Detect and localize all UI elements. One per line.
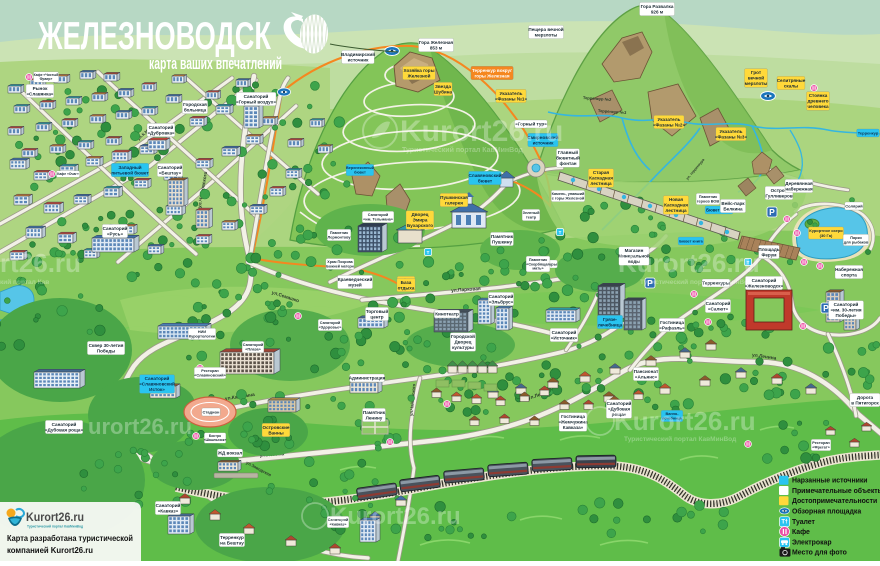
svg-text:Санаторий: Санаторий [145, 375, 170, 381]
svg-text:Указатель: Указатель [500, 91, 523, 96]
svg-text:Kurort26.ru: Kurort26.ru [26, 512, 84, 524]
svg-text:Туристический портал КавМинВод: Туристический портал КавМинВод [27, 524, 83, 529]
svg-text:Электрокар: Электрокар [792, 539, 832, 546]
svg-text:Эмира: Эмира [413, 218, 428, 223]
svg-text:«Дубровка»: «Дубровка» [147, 129, 175, 135]
svg-text:Грязе-: Грязе- [603, 317, 618, 322]
svg-text:«Жемчужина: «Жемчужина [558, 420, 588, 425]
svg-text:Гора Развалка: Гора Развалка [641, 4, 674, 9]
svg-text:Туалет: Туалет [792, 519, 816, 526]
svg-text:Исток»: Исток» [149, 387, 165, 392]
svg-text:Терренкур: Терренкур [220, 535, 244, 540]
svg-text:Каскадная: Каскадная [664, 203, 688, 208]
svg-text:Набережная: Набережная [835, 266, 863, 272]
svg-text:галерея: галерея [445, 200, 463, 205]
svg-text:Хозяйка горы: Хозяйка горы [403, 67, 434, 73]
svg-text:Санаторий: Санаторий [156, 502, 181, 508]
svg-text:Лермонтову: Лермонтову [328, 236, 352, 240]
svg-text:кий портал Кав: кий портал Кав [0, 278, 49, 286]
svg-text:Санаторий: Санаторий [158, 164, 183, 170]
svg-text:Гулливеров: Гулливеров [765, 193, 793, 198]
svg-text:Железной: Железной [407, 72, 431, 78]
svg-text:«Скорбящая: «Скорбящая [526, 262, 549, 266]
svg-text:rt26.ru: rt26.ru [0, 248, 81, 278]
svg-text:«Фазаны №2»: «Фазаны №2» [653, 122, 686, 127]
svg-text:Терренкур: Терренкур [858, 131, 879, 136]
svg-text:Бювет книга: Бювет книга [679, 240, 703, 244]
svg-text:Дворец: Дворец [411, 212, 428, 217]
svg-text:T: T [427, 250, 430, 255]
svg-text:Санаторий: Санаторий [320, 321, 341, 325]
svg-text:Стоянка: Стоянка [809, 93, 828, 98]
svg-text:Новая: Новая [669, 197, 683, 202]
svg-text:Пансионат: Пансионат [634, 369, 659, 374]
svg-text:«Славяновский: «Славяновский [139, 381, 175, 387]
svg-text:«Фазаны №3»: «Фазаны №3» [715, 134, 748, 139]
svg-text:Ферум: Ферум [761, 252, 777, 257]
svg-text:Каскадная: Каскадная [589, 176, 613, 181]
svg-text:«Здоровье»: «Здоровье» [319, 326, 342, 330]
svg-text:больница: больница [184, 106, 207, 112]
svg-text:бювет: бювет [478, 177, 493, 183]
svg-text:горы Железная: горы Железная [474, 73, 509, 78]
svg-text:Санаторий: Санаторий [149, 124, 174, 130]
svg-text:Место для фото: Место для фото [792, 550, 847, 557]
svg-text:Дворец: Дворец [454, 340, 471, 345]
svg-text:Карта разработана туристическо: Карта разработана туристической [7, 533, 133, 543]
svg-text:Дорога: Дорога [857, 395, 874, 400]
svg-text:«Рафаэль»: «Рафаэль» [659, 324, 685, 330]
svg-text:музей: музей [348, 281, 362, 287]
svg-text:Бухарского: Бухарского [407, 223, 433, 228]
svg-text:Нарзанные источники: Нарзанные источники [792, 478, 868, 485]
svg-text:Божией матери: Божией матери [326, 264, 353, 268]
svg-text:Ресторан: Ресторан [812, 441, 830, 445]
svg-text:Санаторий: Санаторий [103, 225, 128, 231]
svg-text:Рынок: Рынок [33, 86, 49, 91]
svg-text:бювет: бювет [354, 171, 366, 175]
svg-text:Примечательные объекты: Примечательные объекты [792, 487, 880, 495]
svg-text:Туристический портал КавМинВод: Туристический портал КавМинВод [624, 435, 736, 443]
svg-text:Kurort26.ru: Kurort26.ru [614, 406, 756, 436]
svg-text:центр: центр [370, 314, 383, 319]
svg-text:ЖД вокзал: ЖД вокзал [217, 451, 242, 456]
svg-text:Вейс-парк: Вейс-парк [721, 200, 745, 206]
svg-text:«Салют»: «Салют» [708, 306, 728, 311]
svg-text:Администрация: Администрация [349, 376, 386, 381]
svg-text:театр: театр [526, 216, 537, 220]
svg-text:Западный: Западный [118, 164, 141, 170]
svg-text:Терренкур вокруг: Терренкур вокруг [472, 68, 512, 73]
svg-text:Торговый: Торговый [366, 308, 389, 314]
svg-text:Kurort26.ru: Kurort26.ru [618, 248, 760, 278]
svg-text:в Пятигорск: в Пятигорск [851, 400, 879, 405]
svg-text:Зеленый: Зеленый [523, 211, 540, 215]
svg-text:P: P [823, 303, 829, 313]
svg-text:«Фрегат»: «Фрегат» [812, 446, 829, 450]
svg-text:Памятник: Памятник [363, 410, 386, 415]
svg-text:Гора Железная: Гора Железная [419, 40, 454, 45]
svg-text:Сквер 30-летия: Сквер 30-летия [89, 343, 124, 348]
svg-text:P: P [769, 207, 775, 217]
svg-text:Звезда: Звезда [435, 84, 451, 89]
svg-text:Владимирский: Владимирский [341, 51, 375, 57]
svg-text:Туристический портал КавМинВод: Туристический портал КавМинВод [402, 146, 523, 154]
svg-text:Санаторий: Санаторий [243, 343, 264, 347]
svg-text:Гостиница: Гостиница [561, 414, 585, 419]
svg-text:Пушкинская: Пушкинская [440, 195, 468, 200]
svg-text:культуры: культуры [452, 345, 474, 350]
svg-text:Грот: Грот [751, 70, 762, 75]
svg-text:источник: источник [348, 57, 370, 62]
svg-text:Санаторий: Санаторий [368, 213, 389, 217]
svg-text:Городской: Городской [451, 333, 475, 339]
svg-text:База: База [401, 280, 412, 285]
svg-text:Памятник: Памятник [491, 234, 514, 239]
svg-text:Пещера вечной: Пещера вечной [528, 26, 563, 32]
svg-text:Славяновский: Славяновский [468, 172, 501, 178]
svg-text:бюветный: бюветный [556, 155, 580, 161]
svg-text:с горы Железной: с горы Железной [552, 197, 585, 201]
svg-text:питьевой бювет: питьевой бювет [111, 169, 149, 175]
svg-text:Стадион: Стадион [203, 410, 221, 415]
svg-text:Памятник: Памятник [529, 258, 547, 262]
svg-text:Туристический портал КавМинВод: Туристический портал КавМинВод [640, 278, 752, 286]
svg-text:скалы: скалы [784, 83, 798, 88]
svg-text:Белкина: Белкина [723, 206, 743, 211]
svg-text:мерзлоты: мерзлоты [745, 81, 768, 86]
svg-text:Верхнеконный: Верхнеконный [346, 166, 375, 170]
svg-text:Деревянная: Деревянная [785, 181, 813, 186]
svg-text:Кафе: Кафе [792, 529, 810, 536]
svg-text:Курортологии: Курортологии [189, 335, 216, 339]
svg-text:для рыбаков: для рыбаков [844, 241, 869, 245]
svg-text:Победы: Победы [97, 347, 115, 353]
svg-text:Ванны: Ванны [268, 430, 283, 435]
svg-text:Островские: Островские [263, 425, 290, 430]
svg-text:«Славянка»: «Славянка» [27, 91, 54, 96]
svg-text:«Русь»: «Русь» [107, 231, 123, 236]
svg-text:Санаторий: Санаторий [552, 329, 577, 335]
svg-text:853 м: 853 м [430, 45, 443, 50]
svg-text:Солярий: Солярий [845, 204, 863, 209]
svg-text:Санаторий: Санаторий [52, 421, 77, 427]
svg-text:«Плаза»: «Плаза» [245, 348, 260, 352]
svg-text:«Источник»: «Источник» [551, 335, 578, 340]
svg-text:«Эльбрус»: «Эльбрус» [489, 298, 514, 304]
svg-text:Камень, упавший: Камень, упавший [552, 192, 585, 196]
svg-text:Санаторий: Санаторий [706, 300, 731, 306]
svg-text:компанией Kurort26.ru: компанией Kurort26.ru [7, 545, 93, 555]
svg-text:НИИ: НИИ [198, 330, 206, 334]
svg-text:Старая: Старая [593, 170, 609, 175]
svg-text:вечной: вечной [748, 75, 764, 81]
svg-text:«Шашлычок»: «Шашлычок» [204, 438, 227, 442]
svg-text:926 м: 926 м [651, 9, 664, 14]
svg-text:лестница: лестница [590, 181, 612, 186]
svg-text:Kurort26.ru: Kurort26.ru [400, 115, 563, 148]
svg-text:ЖЕЛЕЗНОВОДСК: ЖЕЛЕЗНОВОДСК [37, 15, 271, 58]
svg-text:Гостиница: Гостиница [660, 320, 684, 325]
svg-text:«Бештау»: «Бештау» [159, 170, 182, 175]
svg-text:Селитряные: Селитряные [777, 78, 806, 83]
svg-text:Победы»: Победы» [836, 312, 857, 318]
svg-text:Главный: Главный [558, 149, 578, 155]
svg-text:Кавказа»: Кавказа» [563, 425, 584, 430]
svg-text:фонтан: фонтан [559, 160, 576, 166]
svg-text:«Дубовая роща»: «Дубовая роща» [45, 426, 83, 432]
svg-text:Кинотеатр: Кинотеатр [435, 312, 459, 317]
svg-text:Фраер»: Фраер» [40, 77, 53, 81]
svg-text:мать»: мать» [532, 267, 543, 271]
svg-text:«им. Тельмана»: «им. Тельмана» [363, 218, 393, 222]
svg-text:Санаторий: Санаторий [834, 301, 859, 307]
svg-text:«Фазаны №1»: «Фазаны №1» [495, 96, 528, 101]
svg-text:Краеведческий: Краеведческий [338, 276, 373, 282]
svg-text:Достопримечательности: Достопримечательности [792, 498, 877, 505]
svg-text:Ресторан: Ресторан [201, 369, 219, 373]
svg-text:Указатель: Указатель [720, 129, 743, 134]
svg-text:Памятник: Памятник [330, 231, 348, 235]
svg-text:T: T [559, 230, 562, 235]
svg-text:карта ваших впечатлений: карта ваших впечатлений [149, 55, 282, 73]
svg-text:Ленину: Ленину [366, 415, 383, 420]
svg-text:«Горный воздух»: «Горный воздух» [236, 98, 276, 104]
svg-text:Санаторий: Санаторий [489, 293, 514, 299]
svg-text:urort26.ru: urort26.ru [88, 414, 192, 439]
svg-text:«Славяновский»: «Славяновский» [194, 374, 226, 378]
svg-text:Указатель: Указатель [658, 117, 681, 122]
svg-text:мерзлоты: мерзлоты [535, 32, 558, 37]
svg-text:спорта: спорта [841, 272, 857, 277]
svg-text:отдыха: отдыха [398, 285, 415, 290]
svg-text:Площадь: Площадь [758, 247, 779, 252]
svg-text:«Кавказ»: «Кавказ» [158, 508, 179, 513]
svg-text:набережная: набережная [785, 185, 813, 191]
svg-text:Кафе «Очаг»: Кафе «Очаг» [57, 172, 79, 176]
svg-text:лечебница: лечебница [598, 321, 623, 327]
svg-text:героев ВОВ: героев ВОВ [697, 200, 719, 204]
svg-text:Памятник: Памятник [699, 195, 717, 199]
svg-text:лестница: лестница [665, 208, 687, 213]
svg-text:Kurort26.ru: Kurort26.ru [330, 503, 461, 530]
svg-text:Парки: Парки [850, 236, 862, 240]
svg-text:Санаторий: Санаторий [244, 93, 269, 99]
svg-text:«Альянс»: «Альянс» [635, 374, 658, 379]
svg-text:древнего: древнего [807, 99, 828, 104]
svg-text:Тϯ: Тϯ [781, 520, 788, 526]
svg-text:(30 Га): (30 Га) [820, 233, 833, 238]
svg-text:Пушкину: Пушкину [492, 239, 513, 244]
svg-text:человека: человека [807, 104, 829, 109]
svg-text:на Бештау: на Бештау [220, 540, 244, 545]
svg-text:Шубина: Шубина [434, 88, 453, 94]
svg-text:Обзорная площадка: Обзорная площадка [792, 508, 861, 516]
svg-text:«им. 30-летия: «им. 30-летия [830, 308, 861, 313]
svg-text:Городская: Городская [183, 102, 207, 107]
